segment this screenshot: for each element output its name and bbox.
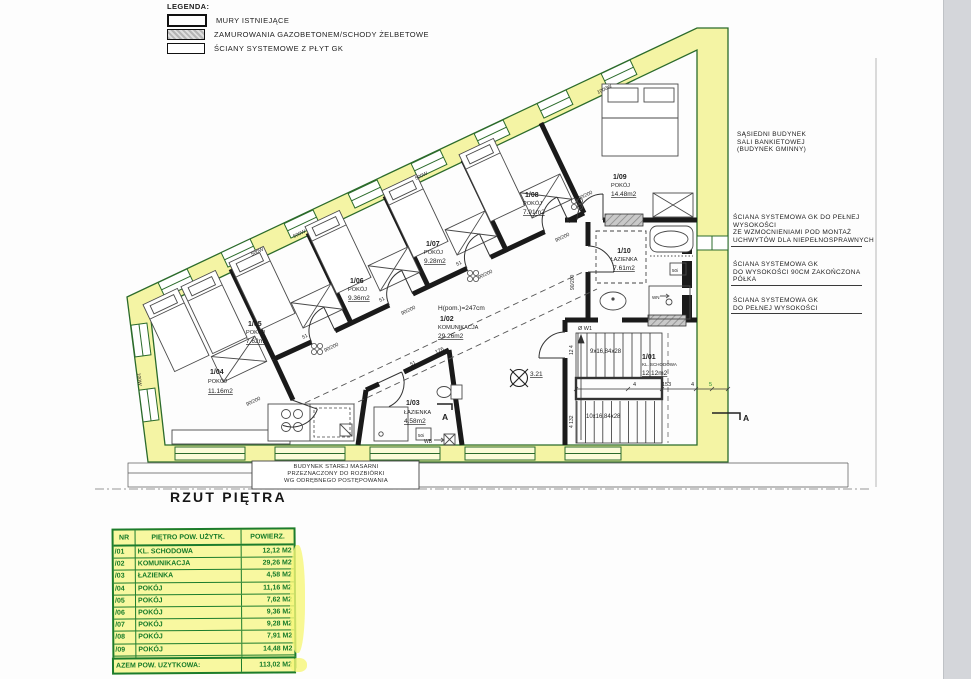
room-label: 1/01 [642, 354, 656, 361]
dim-label: 12 4 [569, 345, 575, 355]
room-area: 7.91m2 [523, 209, 545, 216]
room-area: 9.28m2 [424, 258, 446, 265]
cell-area: 14,48 M2 [242, 645, 294, 652]
level-mark-symbol [510, 369, 528, 387]
door-size-label: 90/200 [570, 274, 576, 290]
highlighter-mark [290, 658, 307, 672]
legend-label: ZAMUROWANIA GAZOBETONEM/SCHODY ŻELBETOWE [214, 30, 429, 39]
footer-total: 113,02 M2 [241, 658, 294, 671]
room-name: POKÓJ [611, 182, 630, 189]
cell-area: 29,26 M2 [242, 560, 294, 567]
page-edge [943, 0, 971, 679]
room-name: ŁAZIENKA [404, 410, 431, 416]
kitchenette [268, 404, 354, 441]
room-name: POKÓJ [246, 329, 265, 336]
room-name: ŁAZIENKA [610, 257, 637, 263]
cell-area: 12,12 M2 [242, 547, 294, 554]
room-area: 14.48m2 [611, 191, 637, 198]
wall-note-1-leader-line [731, 246, 862, 247]
dim-label: 51 [378, 296, 386, 304]
room-name: POKÓJ [523, 200, 542, 207]
door-size-label: 90/200 [577, 190, 594, 202]
cell-name: POKÓJ [136, 607, 242, 619]
section-mark-label: A [442, 412, 448, 422]
legend-item-infill: ZAMUROWANIA GAZOBETONEM/SCHODY ŻELBETOWE [167, 27, 429, 41]
wb-label: WB [424, 439, 433, 445]
area-table-footer: AZEM POW. UŻYTKOWA: 113,02 M2 [112, 656, 296, 674]
wall-note-3: ŚCIANA SYSTEMOWA GK DO PEŁNEJ WYSOKOŚCI [733, 297, 818, 312]
header-nr: NR [114, 530, 136, 544]
footer-label: AZEM POW. UŻYTKOWA: [114, 662, 241, 670]
wall-note-3-leader-line [731, 313, 862, 314]
cell-name: POKÓJ [136, 594, 242, 606]
cell-name: POKÓJ [136, 631, 242, 643]
header-name: PIĘTRO POW. UŻYTK. [136, 530, 242, 545]
room-name: POKÓJ [208, 378, 227, 385]
area-table-header: NR PIĘTRO POW. UŻYTK. POWIERZ. [114, 529, 294, 546]
room-label: 1/10 [617, 248, 631, 255]
cell-nr: /07 [114, 620, 136, 631]
room-label: 1/05 [248, 321, 262, 328]
cell-nr: /06 [114, 607, 136, 618]
door-size-label: 90/200 [245, 396, 262, 408]
dim-label: 4 [691, 382, 694, 388]
room-area: 7.62m2 [246, 338, 268, 345]
wall-note-1: ŚCIANA SYSTEMOWA GK DO PEŁNEJ WYSOKOŚCI … [733, 214, 874, 244]
vent-label: Ø W1 [578, 326, 592, 332]
dim-label: 51 [301, 333, 309, 341]
cell-nr: /02 [114, 559, 136, 570]
room-name: KOMUNIKACJA [438, 325, 479, 331]
wall-note-2: ŚCIANA SYSTEMOWA GK DO WYSOKOŚCI 90CM ZA… [733, 261, 861, 284]
wn-label: WN [652, 295, 660, 300]
cell-name: POKÓJ [136, 619, 242, 631]
cell-nr: /05 [114, 595, 136, 606]
bed [459, 138, 525, 221]
door-size-label: 90/200 [400, 305, 417, 317]
scanned-page: LEGENDA: MURY ISTNIEJĄCE ZAMUROWANIA GAZ… [0, 0, 971, 679]
box-label: 50i [418, 433, 424, 438]
cell-nr: /09 [114, 644, 136, 655]
cell-name: KL. SCHODOWA [136, 546, 242, 558]
room-area: 9.36m2 [348, 295, 370, 302]
window-label: 100W [135, 373, 143, 387]
ceiling-height-label: H(pom.)=247cm [438, 305, 485, 312]
door-size-label: 90/200 [554, 232, 571, 244]
legend-item-existing-walls: MURY ISTNIEJĄCE [167, 13, 429, 27]
cell-area: 7,91 M2 [242, 633, 294, 640]
neighbor-building-note: SĄSIEDNI BUDYNEK SALI BANKIETOWEJ (BUDYN… [737, 131, 806, 154]
room-label: 1/02 [440, 316, 454, 323]
room-area: 4.58m2 [404, 418, 426, 425]
cell-area: 7,62 M2 [242, 596, 294, 603]
room-label: 1/08 [525, 192, 539, 199]
section-mark-label: A [743, 413, 749, 423]
room-label: 1/03 [406, 400, 420, 407]
sheet-title: RZUT PIĘTRA [170, 489, 287, 505]
highlighter-mark [290, 545, 305, 653]
demolition-note: BUDYNEK STAREJ MASARNI PRZEZNACZONY DO R… [256, 464, 416, 485]
header-area: POWIERZ. [242, 533, 294, 540]
cell-nr: /01 [114, 546, 136, 557]
level-mark-label: 3.21 [530, 371, 543, 378]
cell-name: POKÓJ [136, 643, 242, 655]
dim-label: 5 [709, 382, 712, 388]
stairs-down-label: 10x16,84x28 [586, 414, 621, 420]
legend-item-gk-walls: ŚCIANY SYSTEMOWE Z PŁYT GK [167, 41, 429, 55]
room-area: 29.26m2 [438, 333, 464, 340]
box-label: 50i [672, 268, 678, 273]
room-name: POKÓJ [348, 286, 367, 293]
double-bed [602, 84, 678, 156]
cell-area: 11,16 M2 [242, 584, 294, 591]
room-name: POKÓJ [424, 249, 443, 256]
room-name: KL. SCHODOWA [642, 362, 677, 367]
interior-walls [231, 123, 697, 445]
cell-area: 9,28 M2 [242, 621, 294, 628]
cell-nr: /08 [114, 632, 136, 643]
room-label: 1/04 [210, 369, 224, 376]
cell-area: 9,36 M2 [242, 608, 294, 615]
legend-label: MURY ISTNIEJĄCE [216, 16, 289, 25]
legend-swatch-gk-partition [167, 43, 205, 54]
legend: LEGENDA: MURY ISTNIEJĄCE ZAMUROWANIA GAZ… [167, 2, 429, 55]
dim-label: 4 132 [569, 415, 575, 428]
area-table: NR PIĘTRO POW. UŻYTK. POWIERZ. /01KL. SC… [112, 527, 297, 669]
room-area: 11.16m2 [208, 388, 233, 395]
legend-label: ŚCIANY SYSTEMOWE Z PŁYT GK [214, 44, 343, 53]
cell-area: 4,58 M2 [242, 572, 294, 579]
cell-name: KOMUNIKACJA [136, 558, 242, 570]
room-area: 12.12m2 [642, 370, 668, 377]
room-label: 1/09 [613, 174, 627, 181]
cell-name: ŁAZIENKA [136, 570, 242, 582]
legend-swatch-existing-walls [167, 14, 207, 27]
wardrobe [653, 193, 693, 217]
dim-label: 4 [633, 382, 636, 388]
stairs-up-label: 9x16,84x28 [590, 349, 622, 355]
room-label: 1/06 [350, 278, 364, 285]
room-area: 7.61m2 [613, 265, 635, 272]
door-size-label: 90/200 [323, 342, 340, 354]
legend-swatch-infill-hatch [167, 29, 205, 40]
wall-note-2-leader-line [731, 285, 862, 286]
cell-nr: /03 [114, 571, 136, 582]
dim-label: 153 [662, 382, 671, 388]
room-label: 1/07 [426, 241, 440, 248]
legend-title: LEGENDA: [167, 2, 429, 11]
dim-label: 51 [455, 260, 463, 268]
cell-name: POKÓJ [136, 582, 242, 594]
cell-nr: /04 [114, 583, 136, 594]
door-size-label: 90/200 [477, 269, 494, 281]
